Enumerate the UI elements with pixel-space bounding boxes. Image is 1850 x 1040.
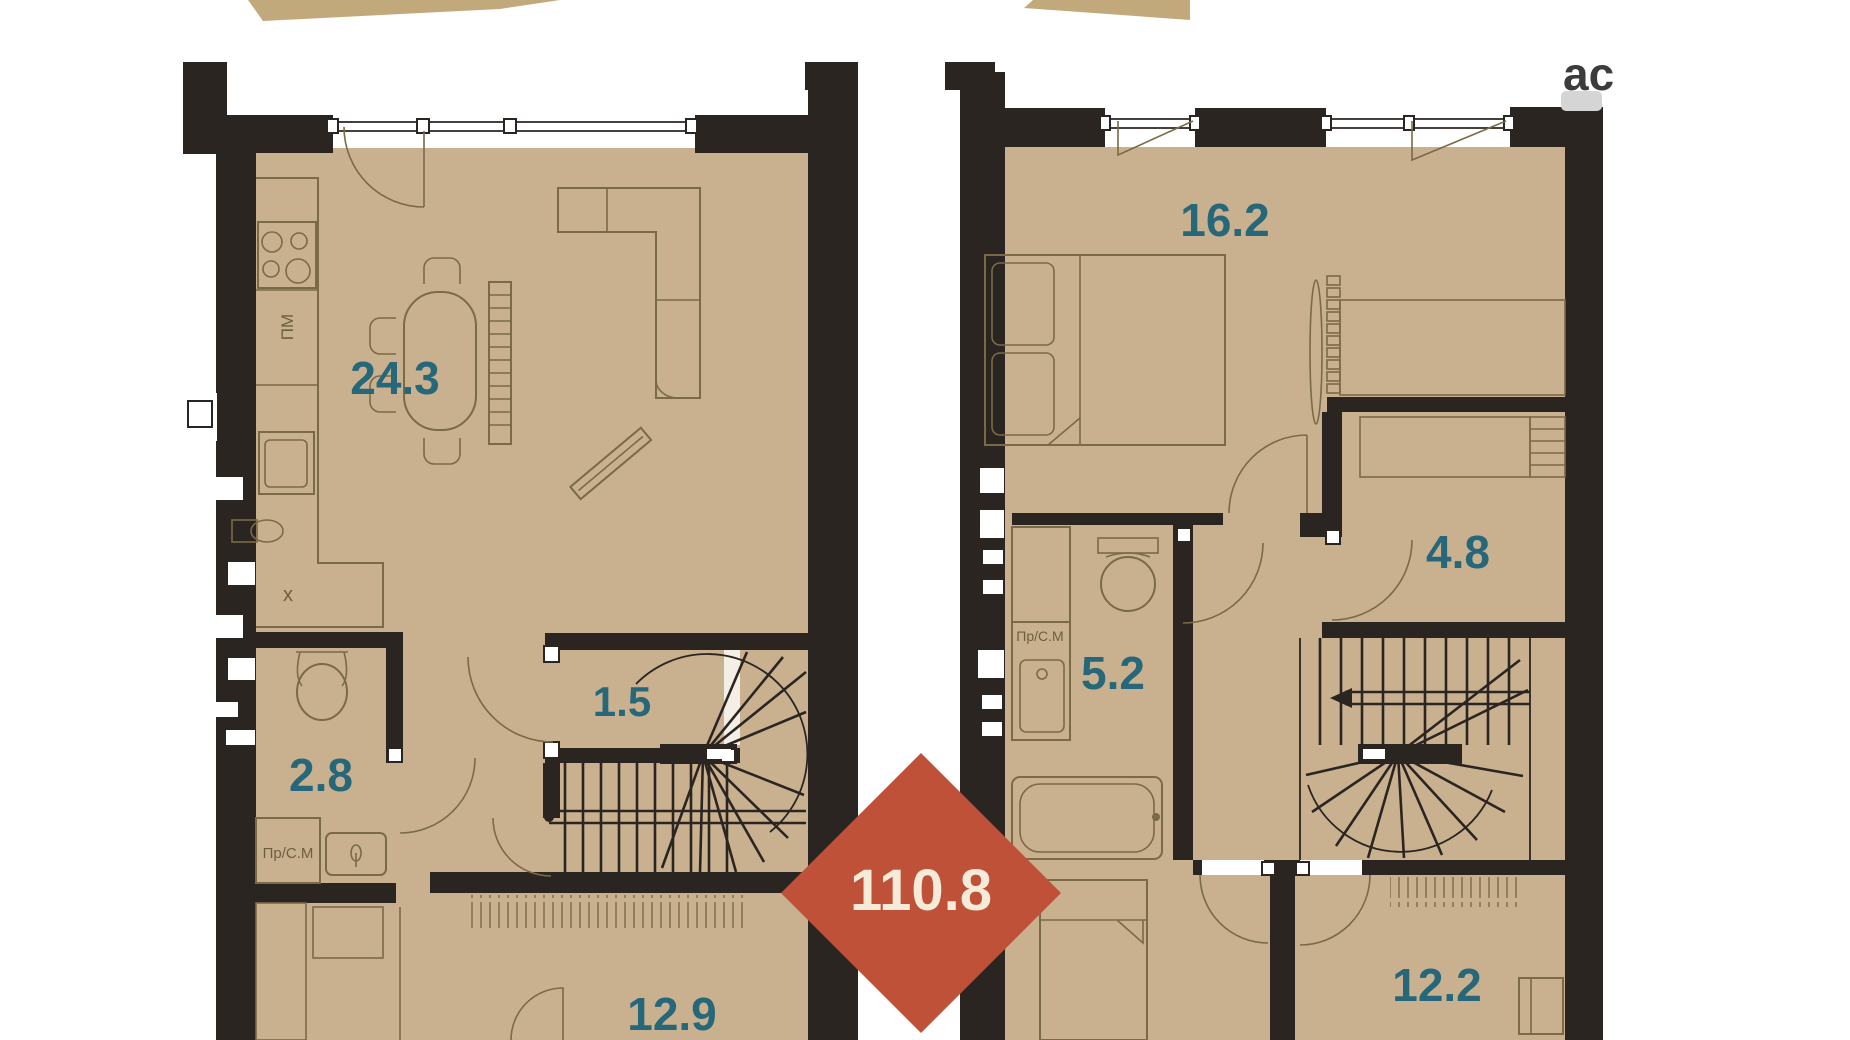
room-label-bathroom2: 5.2 [1081, 647, 1145, 699]
watermark: ас [1561, 48, 1614, 111]
utility-box-icon [188, 401, 212, 427]
dishwasher-label: ПМ [278, 314, 297, 340]
room-label-room129: 12.9 [627, 988, 717, 1040]
sink-mark-label: x [283, 584, 293, 606]
room-label-room122: 12.2 [1392, 959, 1482, 1011]
room-label-bedroom: 16.2 [1180, 194, 1270, 246]
watermark-text: ас [1563, 48, 1614, 100]
top-banner-left [248, 0, 560, 21]
room-label-kitchen-living: 24.3 [350, 352, 440, 404]
radiator-icon [468, 895, 743, 928]
washer-label: Пр/С.М [263, 845, 314, 862]
room-label-hall: 1.5 [593, 678, 651, 725]
floor-plan-1: ПМ x [183, 62, 858, 1040]
top-banner-right [1024, 0, 1190, 20]
washer-label: Пр/С.М [1016, 628, 1063, 644]
room-label-bathroom1: 2.8 [289, 749, 353, 801]
radiator2-icon [1390, 877, 1523, 907]
total-area-value: 110.8 [850, 858, 992, 923]
floorplan-canvas: ПМ x [0, 0, 1850, 1040]
floorplan-screenshot: ПМ x [0, 0, 1850, 1040]
floor1-window [327, 119, 697, 133]
room-label-dressing: 4.8 [1426, 526, 1490, 578]
